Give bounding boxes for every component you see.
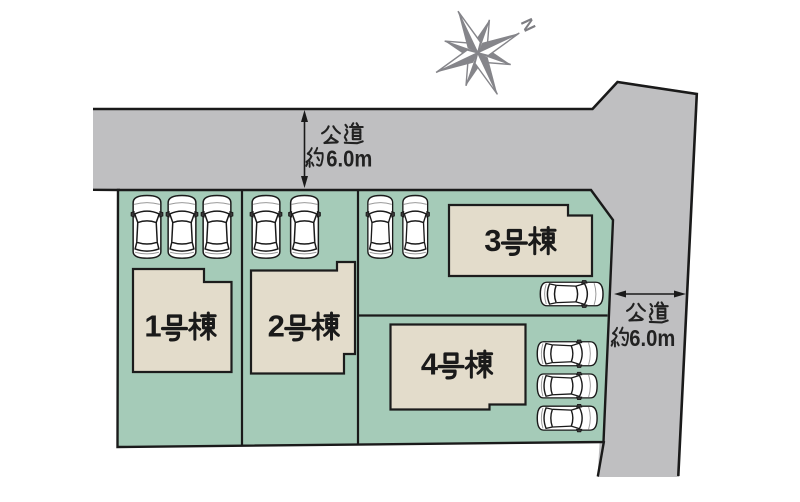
svg-text:2: 2 [268, 309, 285, 344]
svg-text:6.0m: 6.0m [629, 325, 675, 351]
svg-text:6.0m: 6.0m [326, 146, 372, 172]
svg-text:3: 3 [484, 223, 501, 258]
svg-text:1: 1 [144, 309, 161, 344]
svg-text:4: 4 [421, 347, 439, 382]
